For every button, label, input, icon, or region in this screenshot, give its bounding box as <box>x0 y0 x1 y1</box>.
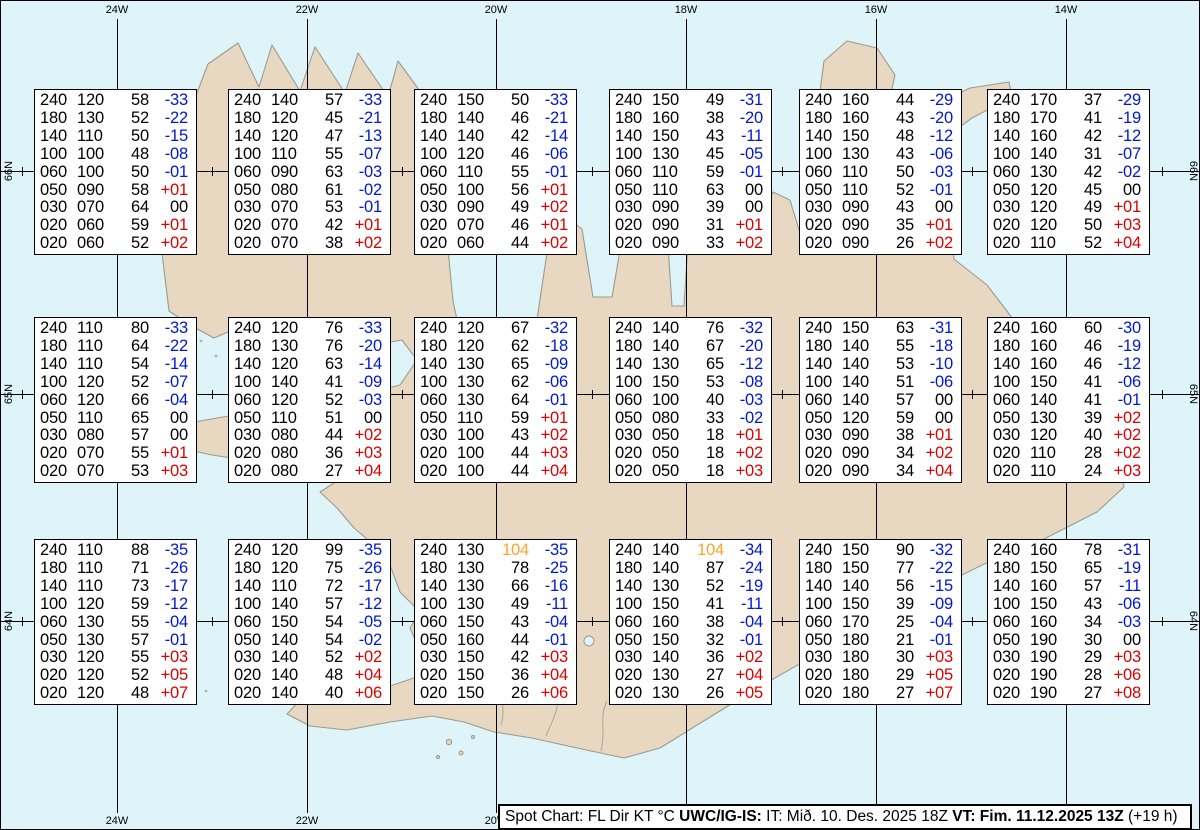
graticule-tick <box>22 167 23 176</box>
spot-data-row: 03012049+01 <box>993 199 1145 217</box>
flight-level: 030 <box>993 199 1030 217</box>
wind-speed: 52 <box>116 374 149 392</box>
wind-speed: 38 <box>691 614 724 632</box>
flight-level: 050 <box>993 632 1030 650</box>
spot-data-row: 14015043-11 <box>615 128 767 146</box>
spot-data-row: 06015043-04 <box>420 614 572 632</box>
spot-data-row: 24017037-29 <box>993 92 1145 110</box>
temperature: +01 <box>529 410 568 428</box>
wind-direction: 150 <box>652 374 691 392</box>
spot-data-row: 05008061-02 <box>234 182 386 200</box>
flight-level: 020 <box>234 235 271 253</box>
wind-direction: 090 <box>271 164 310 182</box>
wind-direction: 060 <box>77 235 116 253</box>
temperature: +06 <box>529 685 568 703</box>
flight-level: 020 <box>234 463 271 481</box>
temperature: -02 <box>343 632 382 650</box>
wind-speed: 57 <box>310 92 343 110</box>
flight-level: 030 <box>805 199 842 217</box>
wind-speed: 52 <box>310 649 343 667</box>
spot-data-row: 06012052-03 <box>234 392 386 410</box>
temperature: -02 <box>343 182 382 200</box>
wind-speed: 27 <box>310 463 343 481</box>
spot-data-row: 18011064-22 <box>40 338 192 356</box>
flight-level: 140 <box>234 356 271 374</box>
spot-chart: 24W24W22W22W20W20W18W18W16W16W14W14W66N6… <box>0 0 1200 830</box>
temperature: +04 <box>914 463 953 481</box>
wind-speed: 76 <box>691 320 724 338</box>
wind-speed: 36 <box>691 649 724 667</box>
temperature: -20 <box>724 338 763 356</box>
wind-direction: 100 <box>77 164 116 182</box>
flight-level: 060 <box>615 164 652 182</box>
spot-data-row: 10013062-06 <box>420 374 572 392</box>
wind-speed: 49 <box>691 92 724 110</box>
wind-direction: 160 <box>1030 356 1069 374</box>
spot-data-row: 18016038-20 <box>615 110 767 128</box>
temperature: +02 <box>1102 445 1141 463</box>
wind-speed: 56 <box>496 182 529 200</box>
wind-speed: 50 <box>496 92 529 110</box>
wind-direction: 090 <box>842 463 881 481</box>
flight-level: 180 <box>234 560 271 578</box>
wind-speed: 45 <box>1069 182 1102 200</box>
spot-data-row: 06011055-01 <box>420 164 572 182</box>
flight-level: 060 <box>40 614 77 632</box>
flight-level: 020 <box>40 445 77 463</box>
wind-direction: 140 <box>1030 392 1069 410</box>
flight-level: 240 <box>234 320 271 338</box>
flight-level: 020 <box>234 667 271 685</box>
wind-direction: 120 <box>271 356 310 374</box>
box-13: 24011088-3518011071-2614011073-171001205… <box>34 539 197 705</box>
wind-speed: 45 <box>310 110 343 128</box>
wind-speed: 57 <box>310 596 343 614</box>
spot-data-row: 10014057-12 <box>234 596 386 614</box>
temperature: -09 <box>343 374 382 392</box>
wind-speed: 54 <box>310 632 343 650</box>
graticule-tick <box>1162 390 1163 399</box>
spot-data-row: 03009049+02 <box>420 199 572 217</box>
temperature: 00 <box>914 392 953 410</box>
spot-data-row: 18013076-20 <box>234 338 386 356</box>
temperature: -11 <box>529 596 568 614</box>
spot-data-row: 02007038+02 <box>234 235 386 253</box>
spot-data-row: 05009058+01 <box>40 182 192 200</box>
spot-data-row: 03014052+02 <box>234 649 386 667</box>
wind-speed: 48 <box>116 146 149 164</box>
flight-level: 180 <box>40 338 77 356</box>
wind-speed: 65 <box>496 356 529 374</box>
spot-data-row: 0501205900 <box>805 410 957 428</box>
temperature: -09 <box>914 596 953 614</box>
wind-speed: 41 <box>1069 374 1102 392</box>
wind-speed: 32 <box>691 632 724 650</box>
wind-speed: 34 <box>881 445 914 463</box>
flight-level: 020 <box>993 445 1030 463</box>
spot-data-row: 06014041-01 <box>993 392 1145 410</box>
spot-data-row: 0300706400 <box>40 199 192 217</box>
temperature: -06 <box>529 146 568 164</box>
spot-data-row: 24012058-33 <box>40 92 192 110</box>
spot-data-row: 02012050+03 <box>993 217 1145 235</box>
wind-direction: 150 <box>1030 596 1069 614</box>
spot-data-row: 0601405700 <box>805 392 957 410</box>
wind-direction: 150 <box>1030 560 1069 578</box>
box-18: 24016078-3118015065-1914016057-111001504… <box>987 539 1150 705</box>
temperature: -19 <box>1102 338 1141 356</box>
temperature: -25 <box>529 560 568 578</box>
graticule-tick <box>402 167 403 176</box>
temperature: -31 <box>914 320 953 338</box>
wind-speed: 39 <box>691 199 724 217</box>
wind-speed: 38 <box>310 235 343 253</box>
wind-speed: 54 <box>310 614 343 632</box>
wind-speed: 18 <box>691 463 724 481</box>
wind-speed: 27 <box>1069 685 1102 703</box>
temperature: 00 <box>149 199 188 217</box>
wind-speed: 38 <box>691 110 724 128</box>
wind-direction: 110 <box>1030 463 1069 481</box>
spot-data-row: 18015077-22 <box>805 560 957 578</box>
wind-direction: 140 <box>271 374 310 392</box>
temperature: 00 <box>914 410 953 428</box>
box-10: 24014076-3218014067-2014013065-121001505… <box>609 317 772 483</box>
wind-speed: 30 <box>881 649 914 667</box>
flight-level: 140 <box>615 578 652 596</box>
flight-level: 020 <box>234 445 271 463</box>
graticule-tick <box>782 390 783 399</box>
flight-level: 240 <box>805 320 842 338</box>
wind-speed: 67 <box>496 320 529 338</box>
temperature: +02 <box>529 427 568 445</box>
temperature: 00 <box>1102 632 1141 650</box>
wind-direction: 110 <box>1030 235 1069 253</box>
wind-speed: 73 <box>116 578 149 596</box>
wind-direction: 140 <box>271 685 310 703</box>
wind-direction: 110 <box>271 410 310 428</box>
temperature: -04 <box>914 614 953 632</box>
wind-speed: 63 <box>310 164 343 182</box>
spot-data-row: 10015053-08 <box>615 374 767 392</box>
spot-data-row: 05011052-01 <box>805 182 957 200</box>
flight-level: 020 <box>805 667 842 685</box>
spot-data-row: 18014087-24 <box>615 560 767 578</box>
spot-data-row: 03010043+02 <box>420 427 572 445</box>
wind-direction: 160 <box>457 632 496 650</box>
temperature: -06 <box>529 374 568 392</box>
temperature: -32 <box>529 320 568 338</box>
wind-direction: 160 <box>1030 578 1069 596</box>
wind-direction: 150 <box>457 92 496 110</box>
flight-level: 050 <box>615 182 652 200</box>
wind-speed: 75 <box>310 560 343 578</box>
wind-direction: 120 <box>1030 199 1069 217</box>
wind-speed: 56 <box>881 578 914 596</box>
temperature: -22 <box>149 338 188 356</box>
spot-data-row: 14012047-13 <box>234 128 386 146</box>
temperature: +02 <box>149 235 188 253</box>
spot-data-row: 02012048+07 <box>40 685 192 703</box>
temperature: -12 <box>1102 356 1141 374</box>
temperature: -24 <box>724 560 763 578</box>
wind-direction: 140 <box>842 374 881 392</box>
spot-data-row: 18015065-19 <box>993 560 1145 578</box>
temperature: -04 <box>149 392 188 410</box>
wind-speed: 65 <box>691 356 724 374</box>
temperature: -32 <box>724 320 763 338</box>
wind-direction: 160 <box>842 92 881 110</box>
flight-level: 020 <box>805 463 842 481</box>
wind-direction: 140 <box>271 649 310 667</box>
wind-speed: 53 <box>310 199 343 217</box>
flight-level: 030 <box>40 649 77 667</box>
temperature: -33 <box>343 92 382 110</box>
spot-data-row: 02008036+03 <box>234 445 386 463</box>
flight-level: 020 <box>805 685 842 703</box>
temperature: +01 <box>529 182 568 200</box>
wind-direction: 150 <box>652 632 691 650</box>
flight-level: 050 <box>805 632 842 650</box>
latitude-label-right: 65N <box>1187 384 1199 404</box>
spot-data-row: 24015063-31 <box>805 320 957 338</box>
wind-speed: 52 <box>116 110 149 128</box>
temperature: -14 <box>149 356 188 374</box>
flight-level: 060 <box>420 392 457 410</box>
flight-level: 100 <box>805 596 842 614</box>
flight-level: 050 <box>40 410 77 428</box>
wind-direction: 100 <box>457 463 496 481</box>
temperature: -01 <box>149 164 188 182</box>
temperature: +02 <box>1102 427 1141 445</box>
temperature: -03 <box>343 164 382 182</box>
wind-speed: 58 <box>116 182 149 200</box>
wind-speed: 63 <box>881 320 914 338</box>
spot-data-row: 02011052+04 <box>993 235 1145 253</box>
wind-direction: 120 <box>77 667 116 685</box>
flight-level: 020 <box>234 217 271 235</box>
wind-speed: 104 <box>496 542 529 560</box>
flight-level: 180 <box>234 110 271 128</box>
temperature: +04 <box>529 667 568 685</box>
temperature: +01 <box>914 427 953 445</box>
wind-speed: 53 <box>881 356 914 374</box>
temperature: 00 <box>724 182 763 200</box>
wind-direction: 130 <box>652 578 691 596</box>
temperature: -01 <box>914 182 953 200</box>
wind-direction: 150 <box>842 542 881 560</box>
wind-direction: 110 <box>842 164 881 182</box>
graticule-tick <box>592 390 593 399</box>
flight-level: 180 <box>615 110 652 128</box>
info-bar-text: IT: Mið. 10. Des. 2025 18Z <box>762 808 952 826</box>
island <box>472 736 475 739</box>
wind-direction: 150 <box>457 685 496 703</box>
temperature: +02 <box>724 235 763 253</box>
wind-speed: 61 <box>310 182 343 200</box>
wind-speed: 49 <box>496 199 529 217</box>
wind-direction: 140 <box>652 542 691 560</box>
wind-speed: 36 <box>310 445 343 463</box>
spot-data-row: 10010048-08 <box>40 146 192 164</box>
wind-speed: 26 <box>691 685 724 703</box>
temperature: +03 <box>149 649 188 667</box>
temperature: -02 <box>1102 164 1141 182</box>
temperature: -29 <box>1102 92 1141 110</box>
wind-direction: 100 <box>77 146 116 164</box>
wind-direction: 150 <box>271 614 310 632</box>
wind-speed: 50 <box>1069 217 1102 235</box>
flight-level: 240 <box>615 92 652 110</box>
wind-direction: 130 <box>652 685 691 703</box>
flight-level: 020 <box>805 217 842 235</box>
temperature: -14 <box>343 356 382 374</box>
temperature: +04 <box>1102 235 1141 253</box>
wind-speed: 36 <box>496 667 529 685</box>
wind-direction: 050 <box>652 445 691 463</box>
wind-direction: 130 <box>457 542 496 560</box>
flight-level: 020 <box>993 463 1030 481</box>
flight-level: 030 <box>420 649 457 667</box>
flight-level: 140 <box>805 356 842 374</box>
flight-level: 240 <box>40 320 77 338</box>
temperature: -19 <box>1102 560 1141 578</box>
spot-data-row: 02011024+03 <box>993 463 1145 481</box>
wind-direction: 140 <box>652 560 691 578</box>
wind-direction: 110 <box>77 356 116 374</box>
flight-level: 020 <box>420 217 457 235</box>
temperature: -09 <box>529 356 568 374</box>
wind-direction: 140 <box>652 320 691 338</box>
temperature: -19 <box>724 578 763 596</box>
wind-speed: 46 <box>496 217 529 235</box>
flight-level: 140 <box>993 128 1030 146</box>
wind-speed: 80 <box>116 320 149 338</box>
flight-level: 050 <box>993 182 1030 200</box>
wind-speed: 38 <box>881 427 914 445</box>
wind-speed: 53 <box>116 463 149 481</box>
flight-level: 060 <box>805 614 842 632</box>
wind-speed: 44 <box>496 445 529 463</box>
flight-level: 020 <box>615 667 652 685</box>
flight-level: 100 <box>234 146 271 164</box>
spot-data-row: 10015041-06 <box>993 374 1145 392</box>
wind-speed: 55 <box>116 649 149 667</box>
wind-direction: 100 <box>457 182 496 200</box>
wind-direction: 170 <box>1030 92 1069 110</box>
wind-speed: 47 <box>310 128 343 146</box>
flight-level: 140 <box>615 128 652 146</box>
flight-level: 140 <box>40 128 77 146</box>
temperature: +01 <box>724 217 763 235</box>
wind-speed: 65 <box>116 410 149 428</box>
spot-data-row: 05013039+02 <box>993 410 1145 428</box>
temperature: -12 <box>724 356 763 374</box>
spot-data-row: 02009033+02 <box>615 235 767 253</box>
wind-direction: 120 <box>77 374 116 392</box>
temperature: -03 <box>1102 614 1141 632</box>
temperature: -05 <box>343 614 382 632</box>
longitude-label-top: 20W <box>485 4 508 16</box>
spot-data-row: 24014057-33 <box>234 92 386 110</box>
temperature: -20 <box>914 110 953 128</box>
spot-data-row: 0300903900 <box>615 199 767 217</box>
wind-direction: 120 <box>271 542 310 560</box>
temperature: -15 <box>914 578 953 596</box>
wind-direction: 150 <box>457 667 496 685</box>
spot-data-row: 18016046-19 <box>993 338 1145 356</box>
graticule-tick <box>592 617 593 626</box>
graticule-tick <box>782 167 783 176</box>
spot-data-row: 0300805700 <box>40 427 192 445</box>
flight-level: 020 <box>615 235 652 253</box>
temperature: +01 <box>149 182 188 200</box>
spot-data-row: 02005018+02 <box>615 445 767 463</box>
wind-speed: 71 <box>116 560 149 578</box>
flight-level: 100 <box>420 596 457 614</box>
spot-data-row: 24012067-32 <box>420 320 572 338</box>
flight-level: 060 <box>993 392 1030 410</box>
spot-data-row: 18014067-20 <box>615 338 767 356</box>
spot-data-row: 02014040+06 <box>234 685 386 703</box>
temperature: -08 <box>724 374 763 392</box>
wind-direction: 120 <box>77 392 116 410</box>
temperature: +04 <box>529 463 568 481</box>
flight-level: 030 <box>993 427 1030 445</box>
spot-data-row: 06011050-03 <box>805 164 957 182</box>
spot-data-row: 02015036+04 <box>420 667 572 685</box>
spot-data-row: 06010050-01 <box>40 164 192 182</box>
wind-direction: 140 <box>842 578 881 596</box>
flight-level: 140 <box>993 578 1030 596</box>
chart-info-bar: Spot Chart: FL Dir KT °C UWC/IG-IS: IT: … <box>498 804 1192 830</box>
spot-data-row: 18012045-21 <box>234 110 386 128</box>
wind-direction: 150 <box>842 128 881 146</box>
spot-data-row: 24016044-29 <box>805 92 957 110</box>
flight-level: 030 <box>420 427 457 445</box>
spot-data-row: 14016046-12 <box>993 356 1145 374</box>
spot-data-row: 02015026+06 <box>420 685 572 703</box>
wind-direction: 120 <box>271 110 310 128</box>
wind-speed: 64 <box>116 199 149 217</box>
flight-level: 050 <box>234 410 271 428</box>
temperature: -32 <box>914 542 953 560</box>
wind-direction: 050 <box>652 463 691 481</box>
wind-direction: 130 <box>457 596 496 614</box>
wind-speed: 42 <box>1069 164 1102 182</box>
temperature: +02 <box>914 445 953 463</box>
wind-speed: 39 <box>1069 410 1102 428</box>
wind-speed: 57 <box>116 427 149 445</box>
spot-data-row: 0501204500 <box>993 182 1145 200</box>
box-8: 24012076-3318013076-2014012063-141001404… <box>228 317 391 483</box>
spot-data-row: 24012076-33 <box>234 320 386 338</box>
wind-speed: 18 <box>691 427 724 445</box>
flight-level: 180 <box>420 338 457 356</box>
wind-speed: 40 <box>691 392 724 410</box>
flight-level: 140 <box>234 128 271 146</box>
spot-data-row: 02007042+01 <box>234 217 386 235</box>
spot-data-row: 02006052+02 <box>40 235 192 253</box>
spot-data-row: 02018029+05 <box>805 667 957 685</box>
flight-level: 140 <box>615 356 652 374</box>
flight-level: 060 <box>993 164 1030 182</box>
wind-speed: 50 <box>881 164 914 182</box>
wind-direction: 160 <box>1030 320 1069 338</box>
flight-level: 180 <box>805 338 842 356</box>
spot-data-row: 0501105100 <box>234 410 386 428</box>
spot-data-row: 14011054-14 <box>40 356 192 374</box>
